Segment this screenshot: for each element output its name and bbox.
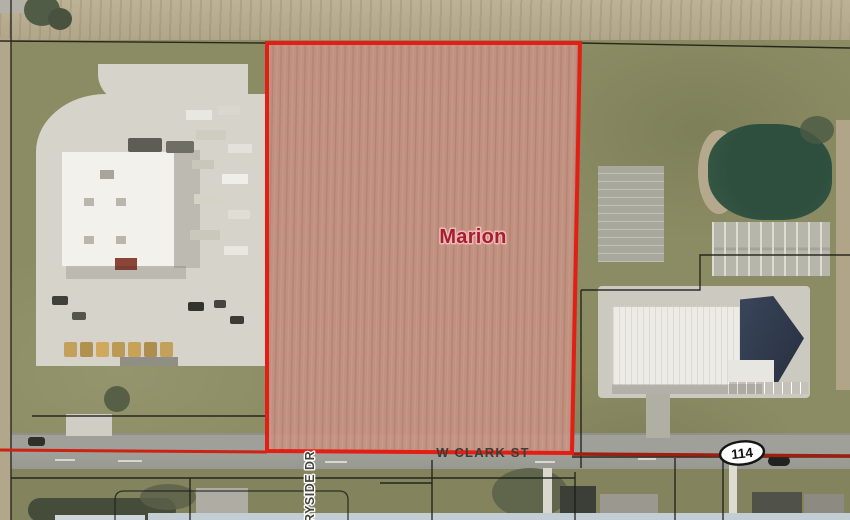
highway-line-west (0, 450, 267, 452)
map-overlay: Marion W CLARK ST RYSIDE DR 114 (0, 0, 850, 520)
route-shield-number: 114 (730, 445, 754, 462)
route-shield: 114 (719, 439, 765, 466)
highway-line-east (572, 454, 850, 456)
lane-dashes (55, 459, 656, 462)
street-label-w-clark-st: W CLARK ST (436, 445, 530, 460)
street-label-countryside-dr: RYSIDE DR (303, 451, 317, 520)
aerial-parcel-map: Marion W CLARK ST RYSIDE DR 114 (0, 0, 850, 520)
parcel-texture (267, 43, 580, 453)
parcel-label: Marion (439, 226, 506, 248)
